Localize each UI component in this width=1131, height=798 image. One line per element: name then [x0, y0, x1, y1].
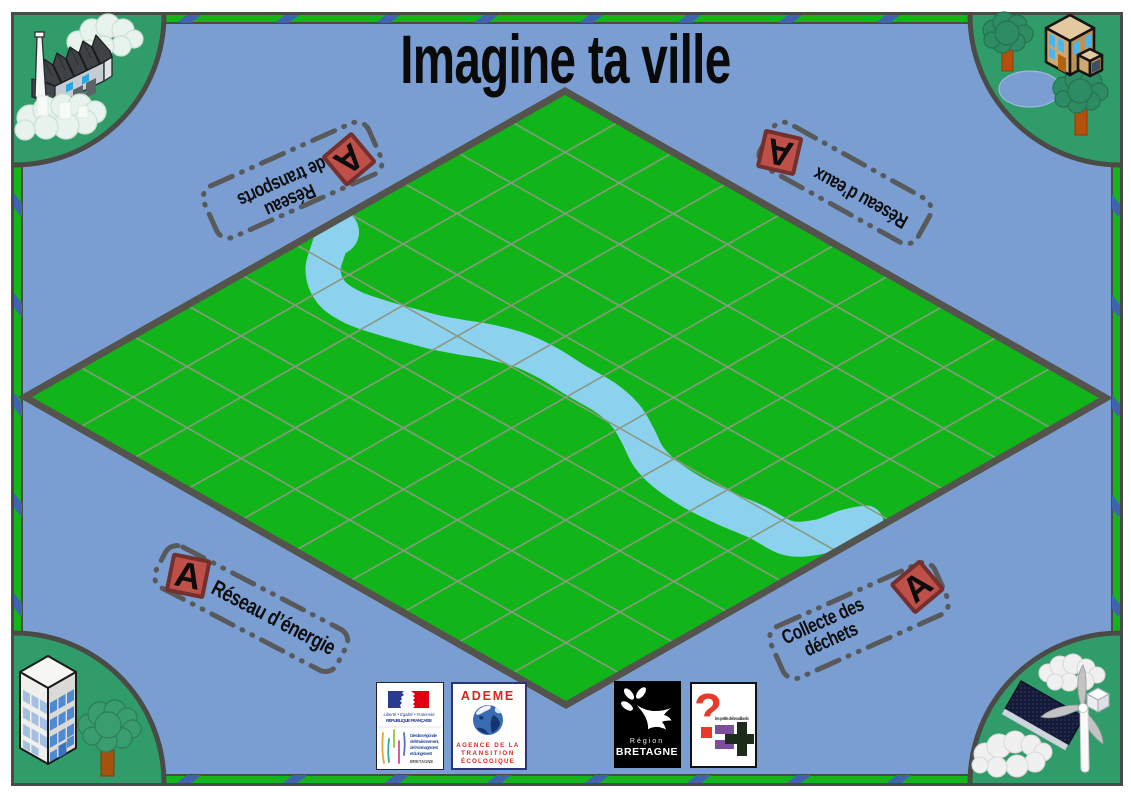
svg-text:BRETAGNE: BRETAGNE	[410, 759, 433, 764]
svg-text:ADEME: ADEME	[461, 689, 515, 703]
svg-text:TRANSITION: TRANSITION	[461, 750, 515, 757]
svg-text:ÉCOLOGIQUE: ÉCOLOGIQUE	[461, 757, 515, 765]
svg-text:Région: Région	[630, 738, 664, 745]
svg-text:Direction régionale: Direction régionale	[410, 733, 438, 738]
svg-text:les petits débrouillards: les petits débrouillards	[715, 716, 750, 721]
svg-text:Liberté • Égalité • Fraternité: Liberté • Égalité • Fraternité	[383, 712, 435, 717]
svg-text:et du logement: et du logement	[410, 751, 433, 756]
svg-text:de l’Aménagement: de l’Aménagement	[410, 745, 439, 750]
svg-text:RÉPUBLIQUE FRANÇAISE: RÉPUBLIQUE FRANÇAISE	[386, 718, 432, 723]
svg-text:AGENCE DE LA: AGENCE DE LA	[456, 742, 520, 749]
svg-text:BRETAGNE: BRETAGNE	[616, 746, 678, 758]
svg-text:de l’Environnement,: de l’Environnement,	[410, 739, 439, 744]
